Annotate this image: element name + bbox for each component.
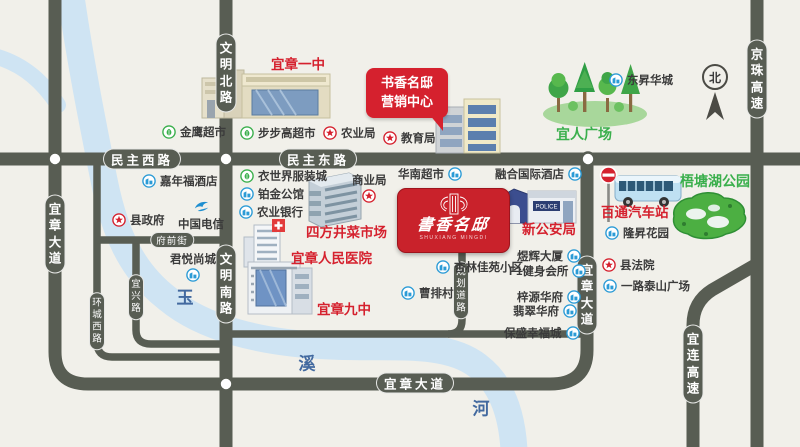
project-logo-block: 書香名邸 SHUXIANG MINGDI (397, 188, 510, 253)
building-dot-icon (567, 290, 581, 304)
project-emblem-icon (435, 193, 473, 217)
poi-sifangjing-market-label: 四方井菜市场 (306, 221, 387, 241)
poi-commerce-bureau-label: 商业局 (352, 172, 387, 188)
project-logo-subtext: SHUXIANG MINGDI (419, 235, 487, 241)
poi-yizhang-no9-school-label: 宜章九中 (317, 298, 371, 318)
shop-dot-icon (240, 169, 254, 183)
building-dot-icon (401, 286, 415, 300)
poi-china-telecom-label: 中国电信 (178, 216, 224, 232)
poi-sifangjing-market: 四方井菜市场 (306, 221, 387, 241)
poi-junyue-shangcheng-label: 君悦尚城 (170, 251, 216, 267)
poi-jianianfu-hotel: 嘉年福酒店 (142, 173, 218, 189)
road-yizhang-ave-west: 宜 章 大 道 (45, 195, 66, 274)
poi-yizhang-no9-school: 宜章九中 (317, 298, 371, 318)
poi-county-government-label: 县政府 (130, 212, 165, 228)
road-huancheng-west-rd: 环 城 西 路 (89, 292, 105, 350)
poi-huanan-supermarket: 华南超市 (398, 166, 462, 182)
no9-school-building (248, 262, 312, 314)
poi-yuhui-tower: 煜辉大厦 (517, 248, 581, 264)
poi-agricultural-bank: 农业银行 (239, 204, 303, 220)
building-dot-icon (240, 187, 254, 201)
poi-bojin-mansion-label: 铂金公馆 (258, 186, 304, 202)
project-logo-name: 書香名邸 (417, 217, 491, 233)
poi-feicui-huafu-label: 翡翠华府 (513, 303, 559, 319)
sales-center-callout: 书香名邸 营销中心 (366, 68, 448, 118)
poi-f1-fitness-club-label: F1健身会所 (509, 263, 568, 279)
poi-baitong-bus-station-label: 百通汽车站 (601, 201, 669, 221)
poi-agricultural-bank-label: 农业银行 (257, 204, 303, 220)
river-char-xi: 溪 (299, 350, 316, 375)
shop-dot-icon (162, 125, 176, 139)
road-wenming-south-rd: 文 明 南 路 (216, 245, 237, 324)
poi-county-court: 县法院 (602, 257, 655, 273)
building-dot-icon (605, 226, 619, 240)
road-minzhu-west-rd: 民主西路 (103, 149, 181, 170)
poi-ronghe-intl-hotel-label: 融合国际酒店 (495, 166, 564, 182)
building-dot-icon (609, 73, 623, 87)
building-dot-icon (567, 249, 581, 263)
road-yixing-rd: 宜 兴 路 (128, 274, 144, 320)
poi-baosheng-xingfucheng-label: 保盛幸福城 (504, 325, 562, 341)
poi-wutang-lake-park: 梧塘湖公园 (680, 171, 750, 191)
poi-county-government: 县政府 (112, 212, 165, 228)
building-dot-icon (239, 205, 253, 219)
poi-longsheng-garden-label: 隆昇花园 (623, 225, 669, 241)
wutang-lake-park (674, 193, 746, 239)
poi-junyue-shangcheng: 君悦尚城 (170, 251, 216, 282)
compass-needle-icon (703, 92, 727, 122)
poi-bubugao-supermarket-label: 步步高超市 (258, 125, 316, 141)
road-yizhang-ave-south: 宜章大道 (376, 373, 454, 394)
poi-agriculture-bureau-label: 农业局 (341, 125, 376, 141)
building-dot-icon (566, 326, 580, 340)
river-char-he: 河 (473, 395, 490, 420)
road-fuqian-street: 府前街 (150, 232, 194, 248)
poi-baitong-bus-station: 百通汽车站 (601, 201, 669, 221)
poi-agriculture-bureau: 农业局 (323, 125, 376, 141)
poi-yizhang-no1-school-label: 宜章一中 (271, 53, 325, 73)
poi-yizhang-peoples-hospital: 宜章人民医院 (291, 247, 372, 267)
poi-yishijie-clothing-city: 衣世界服装城 (240, 168, 327, 184)
china-telecom-logo-icon (193, 198, 210, 215)
poi-new-public-security-bureau: 新公安局 (522, 218, 576, 238)
peoples-hospital-building (244, 219, 285, 267)
poi-caopai-village-label: 曹排村 (419, 285, 454, 301)
red-star-icon (323, 126, 337, 140)
red-star-icon (362, 189, 376, 203)
location-map: POLICE (0, 0, 800, 447)
poi-jinying-supermarket: 金鹰超市 (162, 124, 226, 140)
compass: 北 (700, 64, 730, 122)
poi-new-public-security-bureau-label: 新公安局 (522, 218, 576, 238)
shop-dot-icon (240, 126, 254, 140)
poi-yishijie-clothing-city-label: 衣世界服装城 (258, 168, 327, 184)
building-dot-icon (603, 279, 617, 293)
poi-education-bureau: 教育局 (383, 130, 436, 146)
poi-jianianfu-hotel-label: 嘉年福酒店 (160, 173, 218, 189)
poi-yizhang-peoples-hospital-label: 宜章人民医院 (291, 247, 372, 267)
poi-baosheng-xingfucheng: 保盛幸福城 (504, 325, 580, 341)
poi-yilutaishan-plaza-label: 一路泰山广场 (621, 278, 690, 294)
poi-caopai-village: 曹排村 (401, 285, 454, 301)
poi-longsheng-garden: 隆昇花园 (605, 225, 669, 241)
sales-center-callout-line1: 书香名邸 (368, 74, 446, 93)
building-dot-icon (448, 167, 462, 181)
red-star-icon (602, 258, 616, 272)
road-yilian-expressway: 宜 连 高 速 (683, 325, 704, 404)
building-dot-icon (572, 264, 586, 278)
building-dot-icon (563, 304, 577, 318)
poi-bojin-mansion: 铂金公馆 (240, 186, 304, 202)
road-wenming-north-rd: 文 明 北 路 (216, 34, 237, 113)
poi-bubugao-supermarket: 步步高超市 (240, 125, 316, 141)
poi-ronghe-intl-hotel: 融合国际酒店 (495, 166, 582, 182)
poi-education-bureau-label: 教育局 (401, 130, 436, 146)
building-dot-icon (436, 260, 450, 274)
poi-wutang-lake-park-label: 梧塘湖公园 (680, 171, 750, 191)
compass-north-label: 北 (702, 64, 728, 90)
road-minzhu-east-rd: 民主东路 (279, 149, 357, 170)
red-star-icon (383, 131, 397, 145)
river-char-yu: 玉 (177, 284, 194, 309)
building-dot-icon (142, 174, 156, 188)
poi-yizhang-no1-school: 宜章一中 (271, 53, 325, 73)
red-star-icon (112, 213, 126, 227)
poi-yuhui-tower-label: 煜辉大厦 (517, 248, 563, 264)
sales-center-callout-line2: 营销中心 (368, 93, 446, 112)
poi-feicui-huafu: 翡翠华府 (513, 303, 577, 319)
poi-dongsheng-huacheng: 东昇华城 (609, 72, 673, 88)
poi-huanan-supermarket-label: 华南超市 (398, 166, 444, 182)
poi-yiren-plaza: 宜人广场 (556, 124, 612, 144)
poi-jinying-supermarket-label: 金鹰超市 (180, 124, 226, 140)
poi-dongsheng-huacheng-label: 东昇华城 (627, 72, 673, 88)
police-sign-text: POLICE (535, 205, 557, 211)
road-jingzhu-expressway: 京 珠 高 速 (747, 40, 768, 119)
building-dot-icon (186, 268, 200, 282)
poi-china-telecom: 中国电信 (178, 198, 224, 232)
poi-yiren-plaza-label: 宜人广场 (556, 124, 612, 144)
poi-f1-fitness-club: F1健身会所 (509, 263, 586, 279)
poi-yilutaishan-plaza: 一路泰山广场 (603, 278, 690, 294)
building-dot-icon (568, 167, 582, 181)
poi-county-court-label: 县法院 (620, 257, 655, 273)
poi-commerce-bureau: 商业局 (352, 172, 387, 203)
